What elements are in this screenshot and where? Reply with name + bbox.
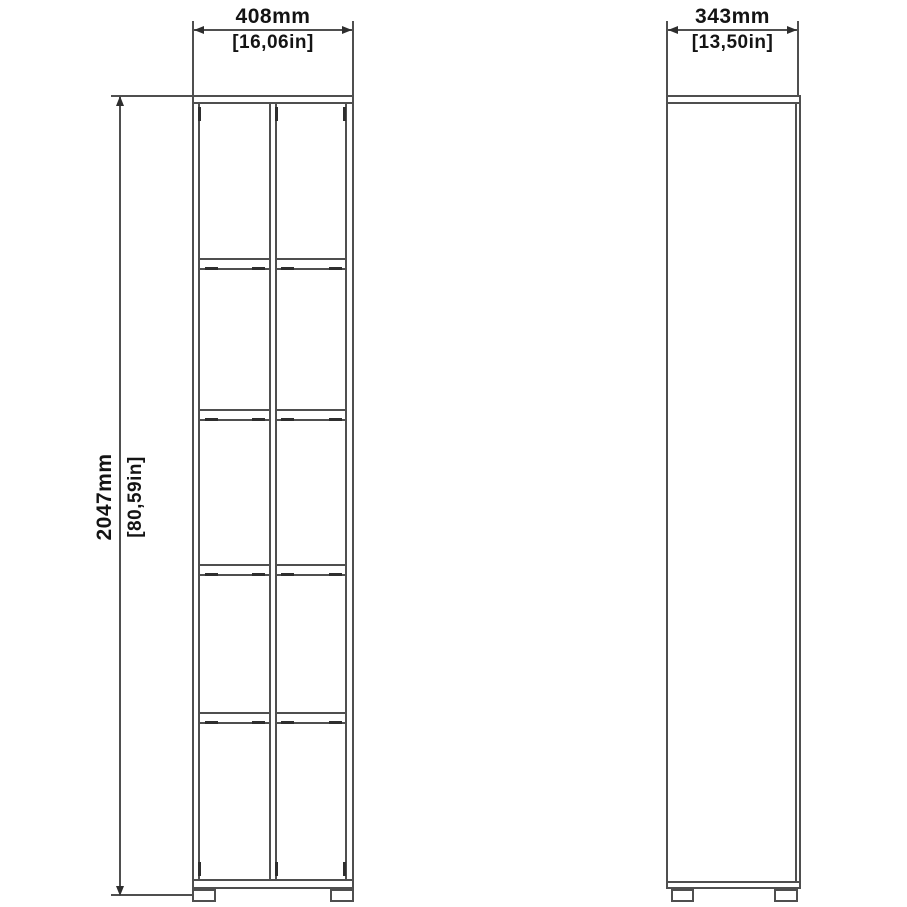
- shelf-pin: [252, 418, 265, 421]
- front-width-mm-label: 408mm: [192, 6, 354, 28]
- hinge-mark: [198, 862, 201, 876]
- front-right-inner-line: [345, 104, 347, 881]
- center-divider-right-line: [275, 104, 277, 881]
- shelf-pin: [252, 267, 265, 270]
- dim-arrow-up: [116, 96, 124, 106]
- shelf-pin: [329, 573, 342, 576]
- shelf-pin: [329, 267, 342, 270]
- dim-arrow-down: [116, 886, 124, 896]
- front-top-panel-line: [194, 102, 352, 104]
- dimension-line: [194, 29, 352, 31]
- shelf-pin: [205, 573, 218, 576]
- shelf-pin: [329, 418, 342, 421]
- side-front-edge-line: [795, 104, 797, 881]
- front-foot-left: [192, 889, 216, 902]
- shelf-pin: [205, 721, 218, 724]
- hinge-mark: [343, 862, 346, 876]
- height-mm-label: 2047mm: [94, 453, 116, 540]
- front-width-in-label: [16,06in]: [192, 32, 354, 53]
- front-foot-right: [330, 889, 354, 902]
- side-foot-left: [671, 889, 694, 902]
- dimension-line: [119, 97, 121, 887]
- shelf-pin: [281, 573, 294, 576]
- center-divider-left-line: [269, 104, 271, 881]
- depth-mm-label: 343mm: [666, 6, 799, 28]
- front-outline: [192, 95, 354, 889]
- shelf-pin: [205, 267, 218, 270]
- hinge-mark: [198, 107, 201, 121]
- side-outline: [666, 95, 801, 889]
- shelf-pin: [281, 267, 294, 270]
- shelf-pin: [329, 721, 342, 724]
- side-bottom-panel-line: [668, 881, 799, 883]
- shelf-pin: [281, 418, 294, 421]
- shelf-pin: [205, 418, 218, 421]
- front-bottom-panel-line: [194, 879, 352, 881]
- side-foot-right: [774, 889, 798, 902]
- shelf-pin: [281, 721, 294, 724]
- hinge-mark: [275, 862, 278, 876]
- furniture-technical-drawing: 408mm [16,06in] 2047mm [80,59in] 343mm […: [0, 0, 907, 907]
- dimension-line: [668, 29, 797, 31]
- shelf-pin: [252, 721, 265, 724]
- height-in-label: [80,59in]: [125, 456, 147, 538]
- side-top-panel-line: [668, 102, 799, 104]
- front-left-inner-line: [198, 104, 200, 881]
- depth-in-label: [13,50in]: [666, 32, 799, 53]
- hinge-mark: [275, 107, 278, 121]
- hinge-mark: [343, 107, 346, 121]
- shelf-pin: [252, 573, 265, 576]
